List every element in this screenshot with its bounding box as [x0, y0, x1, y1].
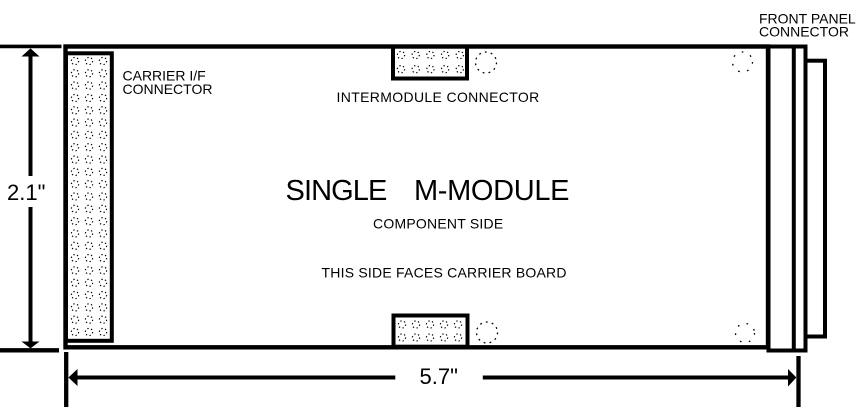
- svg-text:CONNECTOR: CONNECTOR: [759, 24, 849, 40]
- svg-text:M-MODULE: M-MODULE: [414, 175, 569, 207]
- svg-text:COMPONENT SIDE: COMPONENT SIDE: [373, 216, 503, 232]
- svg-text:2.1": 2.1": [7, 180, 45, 205]
- svg-text:5.7": 5.7": [420, 364, 458, 389]
- svg-text:CONNECTOR: CONNECTOR: [123, 81, 213, 97]
- svg-text:INTERMODULE CONNECTOR: INTERMODULE CONNECTOR: [337, 89, 540, 105]
- svg-text:SINGLE: SINGLE: [286, 175, 388, 207]
- svg-text:THIS SIDE FACES CARRIER BOARD: THIS SIDE FACES CARRIER BOARD: [322, 265, 567, 281]
